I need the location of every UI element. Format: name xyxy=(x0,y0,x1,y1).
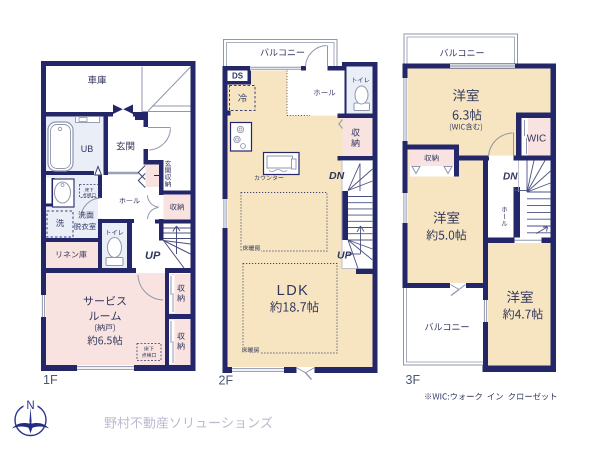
svg-text:UB: UB xyxy=(81,144,94,154)
svg-text:3F: 3F xyxy=(406,373,421,387)
svg-text:DN: DN xyxy=(329,170,345,182)
svg-text:WIC: WIC xyxy=(527,134,546,145)
svg-text:2F: 2F xyxy=(219,374,234,388)
svg-text:DS: DS xyxy=(232,72,244,81)
svg-text:1F: 1F xyxy=(43,373,58,387)
svg-text:UP: UP xyxy=(337,250,353,262)
svg-text:DN: DN xyxy=(503,172,518,183)
svg-text:UP: UP xyxy=(145,250,161,262)
svg-text:LDK: LDK xyxy=(277,283,310,299)
